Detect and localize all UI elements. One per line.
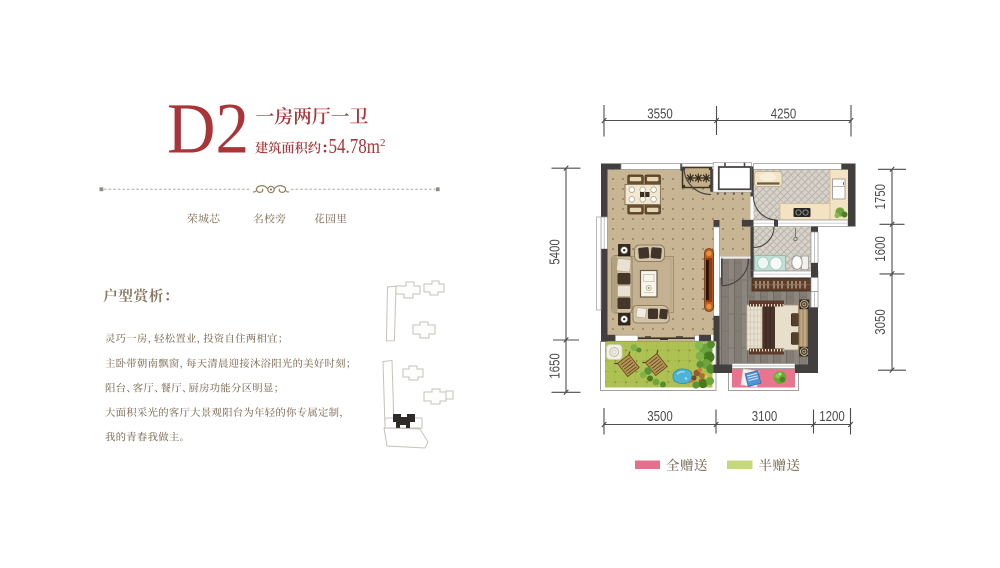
svg-text:1650: 1650: [547, 353, 564, 379]
svg-text:3050: 3050: [872, 309, 889, 335]
svg-text:3500: 3500: [647, 408, 673, 425]
svg-text::: :: [322, 138, 328, 157]
svg-text:1750: 1750: [872, 184, 889, 210]
svg-text:2: 2: [380, 137, 386, 149]
svg-text:5400: 5400: [547, 239, 564, 265]
svg-text:D2: D2: [167, 89, 249, 169]
svg-text:4250: 4250: [771, 106, 797, 123]
svg-text:3100: 3100: [752, 408, 778, 425]
svg-text:1600: 1600: [872, 236, 889, 262]
svg-text:3550: 3550: [647, 106, 673, 123]
svg-text:1200: 1200: [819, 408, 845, 425]
svg-text:54.78m: 54.78m: [329, 134, 381, 158]
